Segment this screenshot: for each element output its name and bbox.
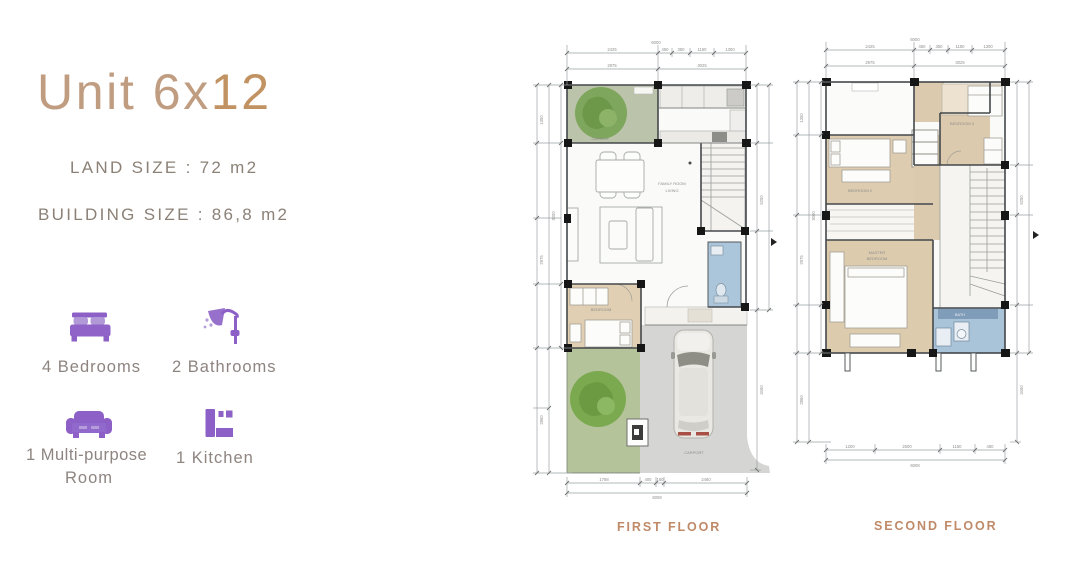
svg-text:1300: 1300 bbox=[725, 47, 735, 52]
svg-text:6000: 6000 bbox=[651, 40, 661, 45]
svg-text:1350: 1350 bbox=[539, 115, 544, 125]
svg-text:BEDROOM: BEDROOM bbox=[591, 307, 612, 312]
svg-text:2860: 2860 bbox=[799, 395, 804, 405]
svg-text:450: 450 bbox=[662, 47, 670, 52]
svg-text:2975: 2975 bbox=[865, 60, 875, 65]
svg-text:2425: 2425 bbox=[865, 44, 875, 49]
svg-text:160: 160 bbox=[657, 477, 665, 482]
svg-text:3025: 3025 bbox=[955, 60, 965, 65]
svg-text:2975: 2975 bbox=[799, 255, 804, 265]
svg-text:1200: 1200 bbox=[845, 444, 855, 449]
svg-text:350: 350 bbox=[678, 47, 686, 52]
svg-text:6008: 6008 bbox=[652, 495, 662, 500]
svg-text:3000: 3000 bbox=[811, 211, 816, 221]
svg-text:5250: 5250 bbox=[759, 195, 764, 205]
svg-text:2500: 2500 bbox=[902, 444, 912, 449]
svg-text:BEDROOM: BEDROOM bbox=[867, 256, 888, 261]
svg-text:2860: 2860 bbox=[539, 415, 544, 425]
svg-text:1788: 1788 bbox=[599, 477, 609, 482]
svg-text:3450: 3450 bbox=[1019, 385, 1024, 395]
svg-text:3025: 3025 bbox=[697, 63, 707, 68]
svg-text:2975: 2975 bbox=[539, 255, 544, 265]
svg-text:350: 350 bbox=[936, 44, 944, 49]
svg-text:BATH: BATH bbox=[955, 312, 965, 317]
svg-text:BEDROOM 3: BEDROOM 3 bbox=[950, 121, 975, 126]
svg-text:GARDEN: GARDEN bbox=[591, 136, 608, 141]
svg-text:2425: 2425 bbox=[607, 47, 617, 52]
svg-text:CARPORT: CARPORT bbox=[684, 450, 704, 455]
svg-text:450: 450 bbox=[919, 44, 927, 49]
svg-text:1150: 1150 bbox=[955, 44, 965, 49]
svg-text:3000: 3000 bbox=[551, 211, 556, 221]
svg-text:1300: 1300 bbox=[983, 44, 993, 49]
svg-text:1350: 1350 bbox=[799, 113, 804, 123]
svg-text:1150: 1150 bbox=[697, 47, 707, 52]
svg-text:MASTER: MASTER bbox=[869, 250, 886, 255]
svg-text:6008: 6008 bbox=[910, 463, 920, 468]
svg-text:5250: 5250 bbox=[1019, 195, 1024, 205]
svg-text:3450: 3450 bbox=[759, 385, 764, 395]
svg-text:FAMILY ROOM: FAMILY ROOM bbox=[658, 181, 685, 186]
svg-text:BEDROOM 2: BEDROOM 2 bbox=[848, 188, 873, 193]
svg-text:1150: 1150 bbox=[952, 444, 962, 449]
svg-text:2460: 2460 bbox=[701, 477, 711, 482]
svg-text:6000: 6000 bbox=[910, 37, 920, 42]
svg-text:LIVING: LIVING bbox=[665, 188, 678, 193]
svg-text:400: 400 bbox=[645, 477, 653, 482]
svg-text:450: 450 bbox=[987, 444, 995, 449]
svg-text:2975: 2975 bbox=[607, 63, 617, 68]
